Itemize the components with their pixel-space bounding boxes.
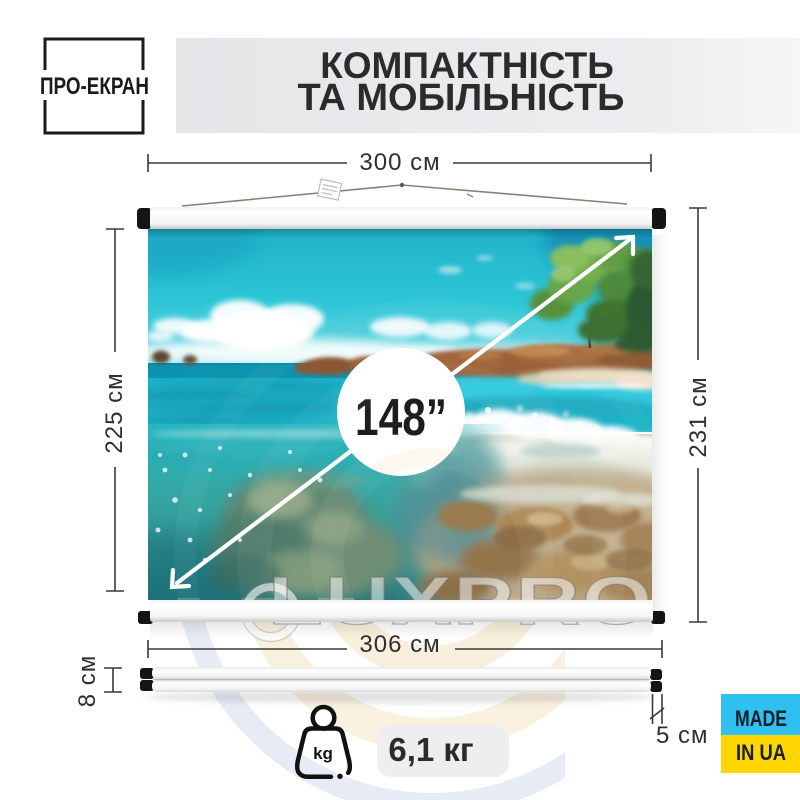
svg-text:6,1 кг: 6,1 кг bbox=[388, 731, 473, 768]
svg-text:300 см: 300 см bbox=[359, 149, 440, 176]
svg-text:8 см: 8 см bbox=[74, 655, 101, 708]
svg-text:225 см: 225 см bbox=[101, 372, 128, 453]
svg-text:ПРО-ЕКРАН: ПРО-ЕКРАН bbox=[40, 73, 149, 100]
svg-text:kg: kg bbox=[313, 744, 333, 763]
svg-text:5 см: 5 см bbox=[656, 722, 709, 749]
svg-text:306 см: 306 см bbox=[359, 631, 440, 658]
svg-text:MADE: MADE bbox=[735, 706, 787, 731]
svg-text:231 см: 231 см bbox=[685, 376, 712, 457]
svg-text:IN UA: IN UA bbox=[736, 740, 786, 765]
svg-text:ТА МОБІЛЬНІСТЬ: ТА МОБІЛЬНІСТЬ bbox=[298, 77, 625, 119]
